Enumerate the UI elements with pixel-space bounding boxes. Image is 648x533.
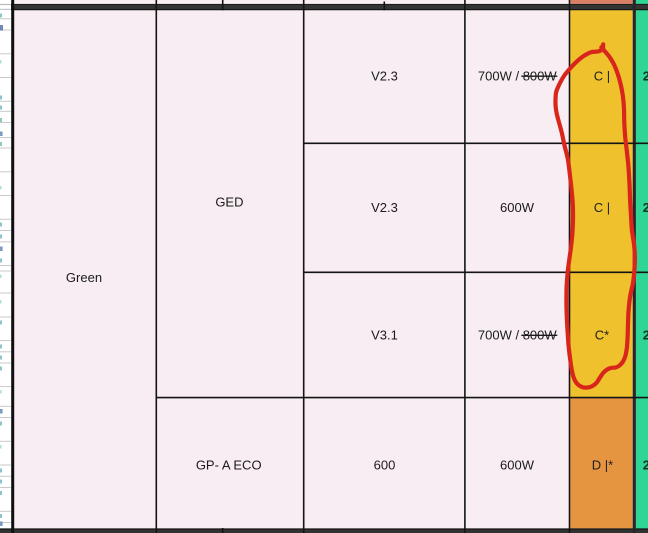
svg-text:V2.3: V2.3 xyxy=(371,68,398,83)
svg-text:D |*: D |* xyxy=(592,458,613,473)
svg-text:600W: 600W xyxy=(500,458,535,473)
svg-text:2: 2 xyxy=(643,68,648,83)
svg-text:V3.1: V3.1 xyxy=(371,328,398,343)
svg-text:600: 600 xyxy=(374,458,396,473)
svg-text:V2.3: V2.3 xyxy=(371,200,398,215)
svg-text:GP- A ECO: GP- A ECO xyxy=(196,458,262,473)
svg-text:2: 2 xyxy=(643,328,648,343)
svg-text:2: 2 xyxy=(643,458,648,473)
svg-text:Green: Green xyxy=(66,270,102,285)
svg-text:C*: C* xyxy=(595,328,609,343)
svg-text:C |: C | xyxy=(594,68,610,83)
svg-text:GED: GED xyxy=(215,195,243,210)
svg-text:600W: 600W xyxy=(500,200,535,215)
svg-text:2: 2 xyxy=(643,200,648,215)
svg-text:C |: C | xyxy=(594,200,610,215)
